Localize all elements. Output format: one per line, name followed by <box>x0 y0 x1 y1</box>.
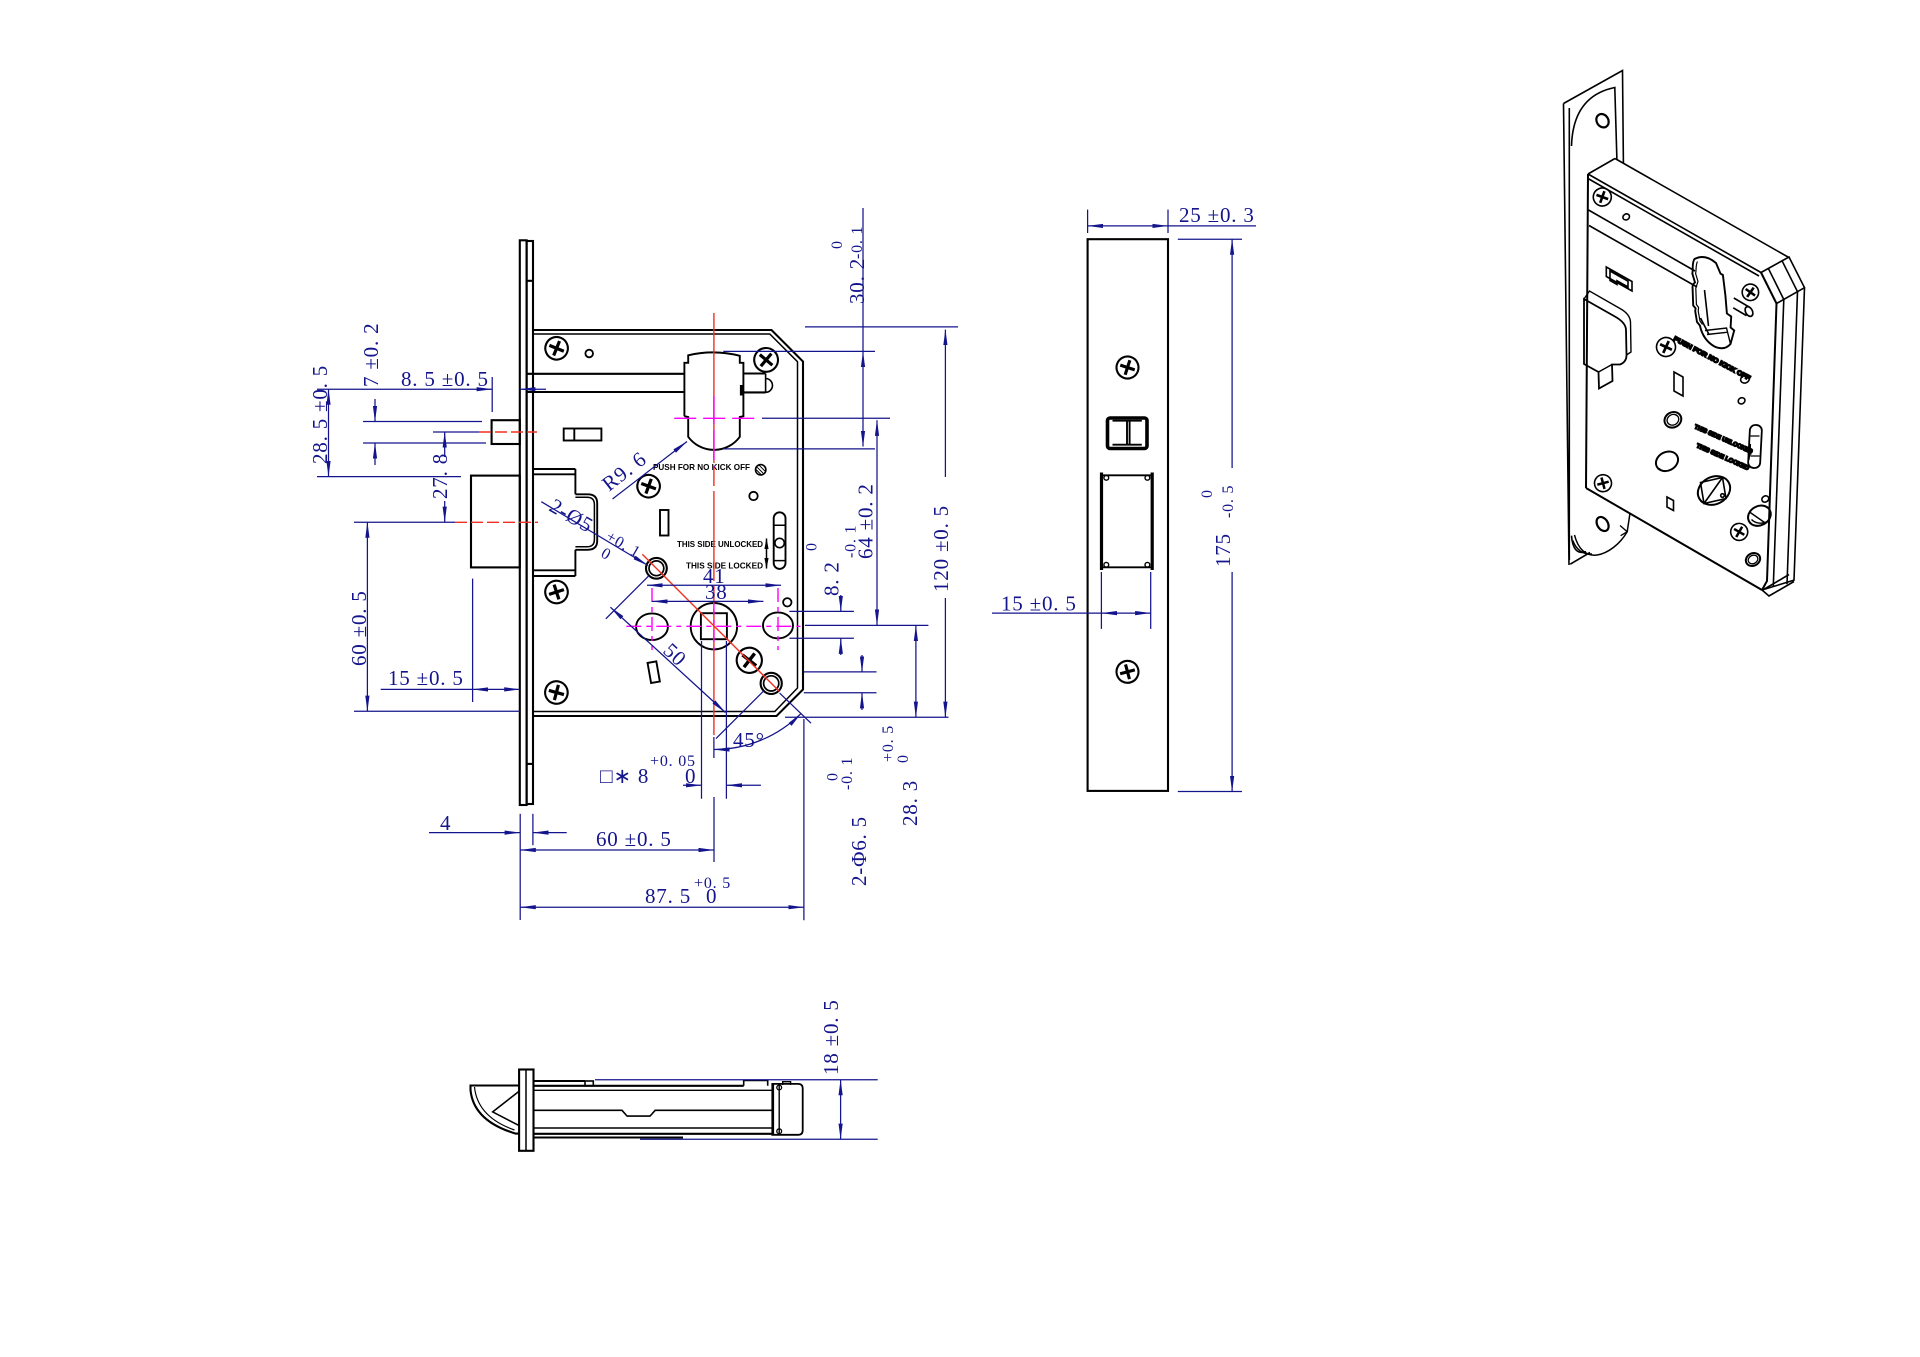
svg-text:4: 4 <box>440 811 451 835</box>
svg-text:R9. 6: R9. 6 <box>597 447 651 496</box>
svg-text:-0. 1: -0. 1 <box>849 226 866 259</box>
svg-text:0: 0 <box>829 240 846 249</box>
svg-text:7 ±0. 2: 7 ±0. 2 <box>359 323 383 387</box>
svg-text:8. 5 ±0. 5: 8. 5 ±0. 5 <box>401 367 489 391</box>
svg-text:60 ±0. 5: 60 ±0. 5 <box>347 590 371 666</box>
svg-text:+0. 05: +0. 05 <box>650 753 696 770</box>
svg-text:PUSH FOR NO KICK OFF: PUSH FOR NO KICK OFF <box>1672 336 1751 383</box>
svg-text:0: 0 <box>895 754 912 763</box>
svg-text:□∗ 8: □∗ 8 <box>600 764 649 788</box>
svg-text:2-Φ6. 5: 2-Φ6. 5 <box>847 816 871 886</box>
svg-text:-0. 1: -0. 1 <box>839 757 856 790</box>
svg-text:15 ±0. 5: 15 ±0. 5 <box>1001 592 1077 616</box>
svg-text:0: 0 <box>1199 489 1216 498</box>
svg-text:175: 175 <box>1211 533 1235 567</box>
svg-text:25 ±0. 3: 25 ±0. 3 <box>1179 203 1255 227</box>
svg-text:87. 5: 87. 5 <box>645 884 691 908</box>
svg-text:0: 0 <box>804 542 821 551</box>
svg-text:8. 2: 8. 2 <box>820 561 844 596</box>
svg-text:28. 3: 28. 3 <box>898 780 922 826</box>
svg-text:0: 0 <box>598 545 614 564</box>
svg-text:28. 5 ±0. 5: 28. 5 ±0. 5 <box>308 365 332 464</box>
svg-text:PUSH FOR NO KICK OFF: PUSH FOR NO KICK OFF <box>653 462 750 472</box>
svg-text:30. 2: 30. 2 <box>845 258 869 304</box>
svg-text:-0. 5: -0. 5 <box>1220 485 1237 518</box>
svg-text:120 ±0. 5: 120 ±0. 5 <box>929 505 953 592</box>
svg-text:18 ±0. 5: 18 ±0. 5 <box>819 999 843 1075</box>
svg-text:60 ±0. 5: 60 ±0. 5 <box>596 827 672 851</box>
svg-text:-0. 1: -0. 1 <box>843 525 860 558</box>
svg-text:THIS SIDE UNLOCKED: THIS SIDE UNLOCKED <box>677 539 763 549</box>
svg-text:38: 38 <box>705 580 728 604</box>
svg-text:50: 50 <box>659 638 692 671</box>
svg-text:27. 8: 27. 8 <box>428 453 452 499</box>
svg-text:+0. 5: +0. 5 <box>694 875 731 892</box>
svg-text:15 ±0. 5: 15 ±0. 5 <box>388 666 464 690</box>
svg-text:45°: 45° <box>733 728 765 752</box>
